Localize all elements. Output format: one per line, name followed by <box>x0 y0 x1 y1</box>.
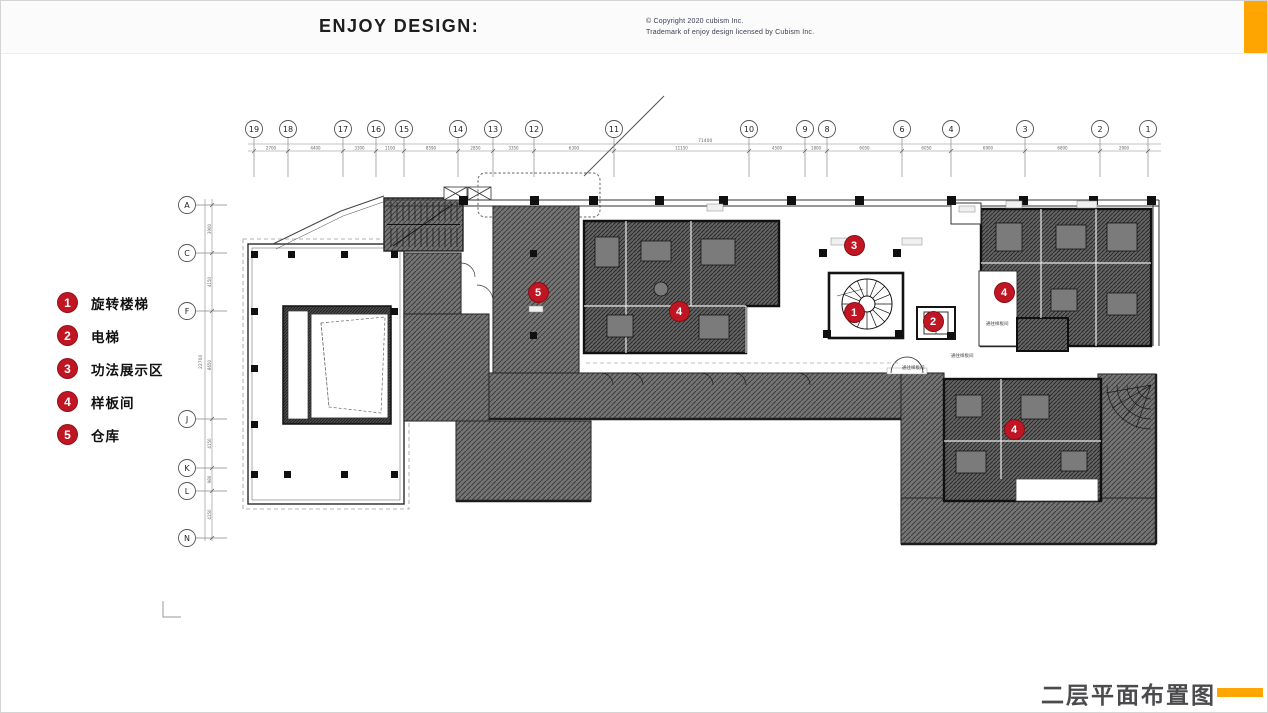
legend-marker-3: 3 <box>57 358 78 379</box>
floor-plan-drawing: 7140019270018440017330016110015859014285… <box>1 1 1268 713</box>
legend-marker-5: 5 <box>57 424 78 445</box>
tiny-room-label: 通往样板间 <box>902 364 925 371</box>
legend: 1旋转楼梯2电梯3功法展示区4样板间5仓库 <box>57 286 164 451</box>
svg-text:1: 1 <box>1145 125 1150 134</box>
legend-item: 2电梯 <box>57 319 164 352</box>
legend-label: 电梯 <box>91 326 120 346</box>
svg-text:13: 13 <box>488 125 498 134</box>
svg-text:17: 17 <box>338 125 348 134</box>
plan-marker-2: 2 <box>923 311 944 332</box>
plan-marker-4: 4 <box>994 282 1015 303</box>
svg-text:L: L <box>185 487 190 496</box>
corridor-band <box>489 373 901 419</box>
svg-text:4150: 4150 <box>207 438 212 449</box>
svg-text:4: 4 <box>948 125 953 134</box>
svg-text:6: 6 <box>899 125 904 134</box>
plan-marker-4: 4 <box>669 301 690 322</box>
svg-text:16: 16 <box>371 125 381 134</box>
svg-text:11: 11 <box>609 125 619 134</box>
leader-line <box>584 96 664 176</box>
svg-text:12: 12 <box>529 125 539 134</box>
slide: ENJOY DESIGN: © Copyright 2020 cubism In… <box>0 0 1268 713</box>
legend-label: 样板间 <box>91 392 135 412</box>
svg-text:8650: 8650 <box>207 359 212 370</box>
svg-text:2850: 2850 <box>470 146 481 151</box>
spiral-staircase <box>829 273 903 338</box>
svg-text:18: 18 <box>283 125 293 134</box>
legend-item: 5仓库 <box>57 418 164 451</box>
plan-marker-4: 4 <box>1004 419 1025 440</box>
svg-text:3: 3 <box>1022 125 1027 134</box>
svg-text:1800: 1800 <box>811 146 822 151</box>
svg-text:J: J <box>185 415 188 424</box>
legend-label: 仓库 <box>91 425 120 445</box>
title-accent-bar <box>1217 688 1263 697</box>
svg-text:4500: 4500 <box>772 146 783 151</box>
svg-text:6050: 6050 <box>859 146 870 151</box>
page-title: 二层平面布置图 <box>1041 676 1216 710</box>
svg-text:F: F <box>185 307 190 316</box>
svg-text:1100: 1100 <box>385 146 396 151</box>
svg-text:A: A <box>184 201 190 210</box>
svg-text:6050: 6050 <box>921 146 932 151</box>
svg-text:6300: 6300 <box>569 146 580 151</box>
legend-marker-4: 4 <box>57 391 78 412</box>
svg-text:2900: 2900 <box>1119 146 1130 151</box>
legend-item: 1旋转楼梯 <box>57 286 164 319</box>
vestibule-doors <box>461 263 493 301</box>
atrium <box>283 306 391 424</box>
svg-text:980: 980 <box>207 475 212 483</box>
svg-text:2700: 2700 <box>266 146 277 151</box>
svg-text:10: 10 <box>744 125 754 134</box>
svg-text:4150: 4150 <box>207 509 212 520</box>
svg-text:8590: 8590 <box>426 146 437 151</box>
svg-text:2: 2 <box>1097 125 1102 134</box>
svg-text:6900: 6900 <box>983 146 994 151</box>
svg-text:19: 19 <box>249 125 259 134</box>
plan-marker-3: 3 <box>844 235 865 256</box>
svg-text:71400: 71400 <box>698 138 712 144</box>
svg-text:3900: 3900 <box>207 223 212 234</box>
svg-text:11150: 11150 <box>675 146 688 151</box>
svg-text:4150: 4150 <box>207 276 212 287</box>
svg-text:15: 15 <box>399 125 409 134</box>
svg-text:3300: 3300 <box>354 146 365 151</box>
legend-item: 3功法展示区 <box>57 352 164 385</box>
svg-text:6800: 6800 <box>1057 146 1068 151</box>
svg-text:3350: 3350 <box>508 146 519 151</box>
svg-text:K: K <box>184 464 190 473</box>
corner-bracket <box>163 601 181 617</box>
tiny-room-label: 通往样板间 <box>951 352 974 359</box>
sample-room-bottomright <box>944 379 1101 501</box>
legend-marker-1: 1 <box>57 292 78 313</box>
legend-marker-2: 2 <box>57 325 78 346</box>
sample-room-center <box>584 221 779 353</box>
svg-text:C: C <box>184 249 190 258</box>
svg-text:N: N <box>184 534 190 543</box>
legend-label: 旋转楼梯 <box>91 293 149 313</box>
entry-block <box>404 253 461 314</box>
plan-marker-5: 5 <box>528 282 549 303</box>
svg-text:14: 14 <box>453 125 463 134</box>
legend-item: 4样板间 <box>57 385 164 418</box>
svg-text:22700: 22700 <box>198 355 204 369</box>
sample-room-topright <box>979 209 1151 351</box>
svg-text:4400: 4400 <box>310 146 321 151</box>
svg-text:9: 9 <box>802 125 807 134</box>
plan-marker-1: 1 <box>844 302 865 323</box>
legend-label: 功法展示区 <box>91 359 164 379</box>
tiny-room-label: 通往样板间 <box>986 320 1009 327</box>
svg-text:8: 8 <box>824 125 829 134</box>
